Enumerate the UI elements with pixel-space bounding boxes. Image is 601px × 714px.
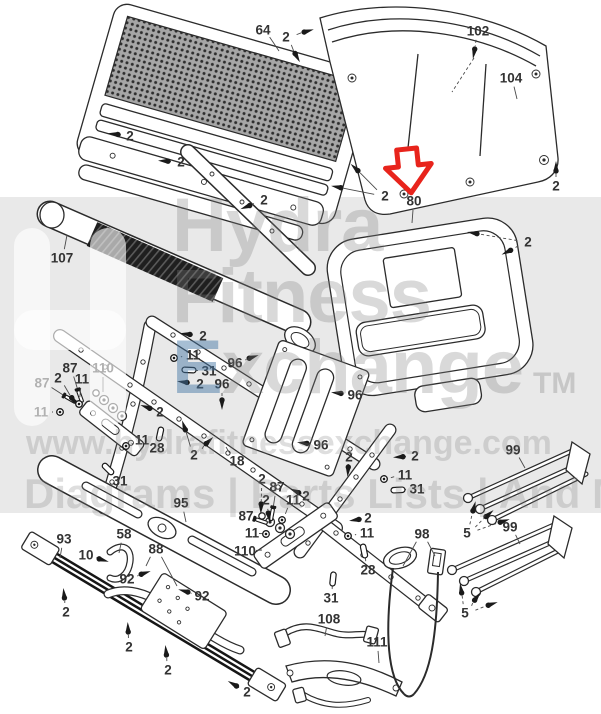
part-number-label: 2 [262,493,270,508]
screw-fastener-icon [138,569,152,578]
part-number-label: 111 [366,635,388,650]
part-number-label: 2 [164,663,172,678]
part-number-label: 2 [302,489,310,504]
nut-fastener-icon [380,475,388,483]
callout-leader-line [291,45,293,51]
part-number-label: 99 [502,520,517,535]
part-number-label: 2 [381,189,389,204]
part-number-label: 58 [116,527,132,542]
callout-leader-line [470,514,472,525]
part-number-label: 2 [282,30,290,45]
nut-fastener-icon [170,354,178,362]
part-number-label: 2 [260,193,268,208]
part-number-label: 96 [214,377,230,392]
part-number-label: 2 [524,235,532,250]
callout-leader-line [52,387,64,395]
part-number-label: 80 [406,194,421,209]
callout-leader-line [191,593,192,594]
screw-fastener-icon [246,353,260,362]
part-callout: 11 [34,405,63,420]
part-callout: 80 [406,194,421,224]
part-number-label: 10 [78,548,93,563]
part-number-label: 96 [313,438,329,453]
part-number-label: 2 [364,511,372,526]
screw-fastener-icon [61,588,68,601]
callout-leader-line [297,33,302,35]
part-number-label: 2 [126,129,134,144]
callout-leader-line [475,519,483,528]
part-number-label: 11 [245,526,260,541]
part-number-label: 110 [92,361,114,376]
part-number-label: 11 [186,348,201,363]
part-callout: 95 [173,496,189,523]
callout-leader-line [519,457,525,468]
part-number-label: 31 [409,482,425,497]
part-number-label: 11 [34,405,49,420]
part-number-label: 5 [463,526,471,541]
callout-leader-line [202,446,204,449]
part-number-label: 11 [135,433,150,448]
part-number-label: 108 [318,612,341,627]
part-number-label: 2 [243,685,251,700]
callout-leader-line [146,557,150,566]
screw-fastener-icon [163,645,170,658]
screw-fastener-icon [96,556,110,565]
callout-leader-line [273,496,275,507]
screw-fastener-icon [226,679,240,690]
pin-fastener-icon [182,367,196,373]
callout-leader-line [475,606,485,610]
screw-fastener-icon [485,600,499,609]
callout-leader-line [378,651,379,663]
part-number-label: 28 [149,441,165,456]
nut-fastener-icon [57,409,64,416]
part-number-label: 2 [411,449,419,464]
screw-fastener-icon [393,454,406,460]
part-callout: 96 [227,353,259,371]
part-callout: 2 [393,449,419,464]
callout-leader-line [245,359,246,360]
part-number-label: 2 [552,179,560,194]
part-number-label: 92 [194,589,209,604]
callout-leader-line [477,523,497,530]
part-number-label: 87 [269,480,284,495]
part-number-label: 31 [323,591,339,606]
part-number-label: 2 [258,472,266,487]
pin-fastener-icon [330,572,337,586]
part-number-label: 2 [345,450,353,465]
part-number-label: 2 [62,605,70,620]
screw-fastener-icon [125,622,131,635]
part-number-label: 87 [34,376,49,391]
part-number-label: 98 [414,527,430,542]
part-number-label: 96 [347,388,363,403]
callout-leader-line [462,596,463,604]
part-number-label: 87 [238,509,253,524]
part-number-label: 99 [505,443,520,458]
pin-fastener-icon [156,427,164,442]
nut-fastener-icon [262,530,269,537]
part-number-label: 18 [229,454,245,469]
parts-diagram-page: 6421021042222280210721131296969687110872… [0,0,601,714]
part-callout: 96 [214,377,230,411]
part-callout: 2 [177,377,204,392]
part-number-label: 102 [467,24,490,39]
screw-fastener-icon [219,397,224,410]
part-number-label: 2 [190,448,198,463]
part-callout: 11 [245,526,270,541]
callout-leader-line [64,235,67,249]
parts-diagram-canvas: 6421021042222280210721131296969687110872… [0,0,601,714]
part-number-label: 2 [156,405,164,420]
callout-leader-line [472,603,473,606]
part-number-label: 11 [75,372,90,387]
callout-leader-line [285,508,287,514]
part-number-label: 2 [199,329,207,344]
part-number-label: 2 [177,155,185,170]
callout-leader-line [355,534,356,535]
part-number-label: 92 [119,572,134,587]
part-number-label: 107 [51,251,74,266]
part-number-label: 5 [461,606,469,621]
nut-fastener-icon [344,532,352,540]
part-number-label: 28 [360,563,376,578]
part-number-label: 11 [398,468,413,483]
callout-leader-line [137,575,138,576]
screw-fastener-icon [349,516,362,523]
part-callout: 2 [125,622,133,655]
callout-leader-line [412,210,413,223]
part-number-label: 64 [255,23,271,38]
part-number-label: 96 [227,356,243,371]
part-callout: 99 [505,443,525,469]
part-number-label: 93 [56,532,72,547]
part-number-label: 2 [196,377,204,392]
screw-fastener-icon [301,27,315,36]
part-callout: 31 [323,572,339,606]
pin-fastener-icon [391,487,405,493]
strap-98 [381,543,446,696]
part-number-label: 31 [112,474,128,489]
part-callout: 11 [170,348,200,363]
part-callout: 31 [391,482,425,497]
part-callout: 92 [119,569,151,587]
part-callout: 11 [380,468,412,483]
nut-fastener-icon [75,400,82,407]
callout-leader-line [181,356,182,357]
callout-leader-line [184,512,186,522]
part-callout: 2 [163,645,172,678]
part-callout: 2 [61,588,70,620]
part-callout: 28 [149,427,165,456]
part-number-label: 95 [173,496,189,511]
part-callout: 2 [349,511,372,526]
part-callout: 2 [226,679,250,700]
part-callout: 10 [78,548,109,565]
part-number-label: 88 [148,542,164,557]
part-callout: 11 [344,526,374,541]
part-number-label: 11 [360,526,375,541]
callout-leader-line [391,477,394,478]
screw-fastener-icon [177,379,190,386]
part-callout: 107 [51,235,74,266]
part-number-label: 2 [125,640,133,655]
rod-set-99-upper [464,442,591,525]
part-number-label: 104 [500,71,523,86]
part-callout: 111 [366,635,388,664]
part-number-label: 2 [54,371,62,386]
part-number-label: 110 [234,544,256,559]
